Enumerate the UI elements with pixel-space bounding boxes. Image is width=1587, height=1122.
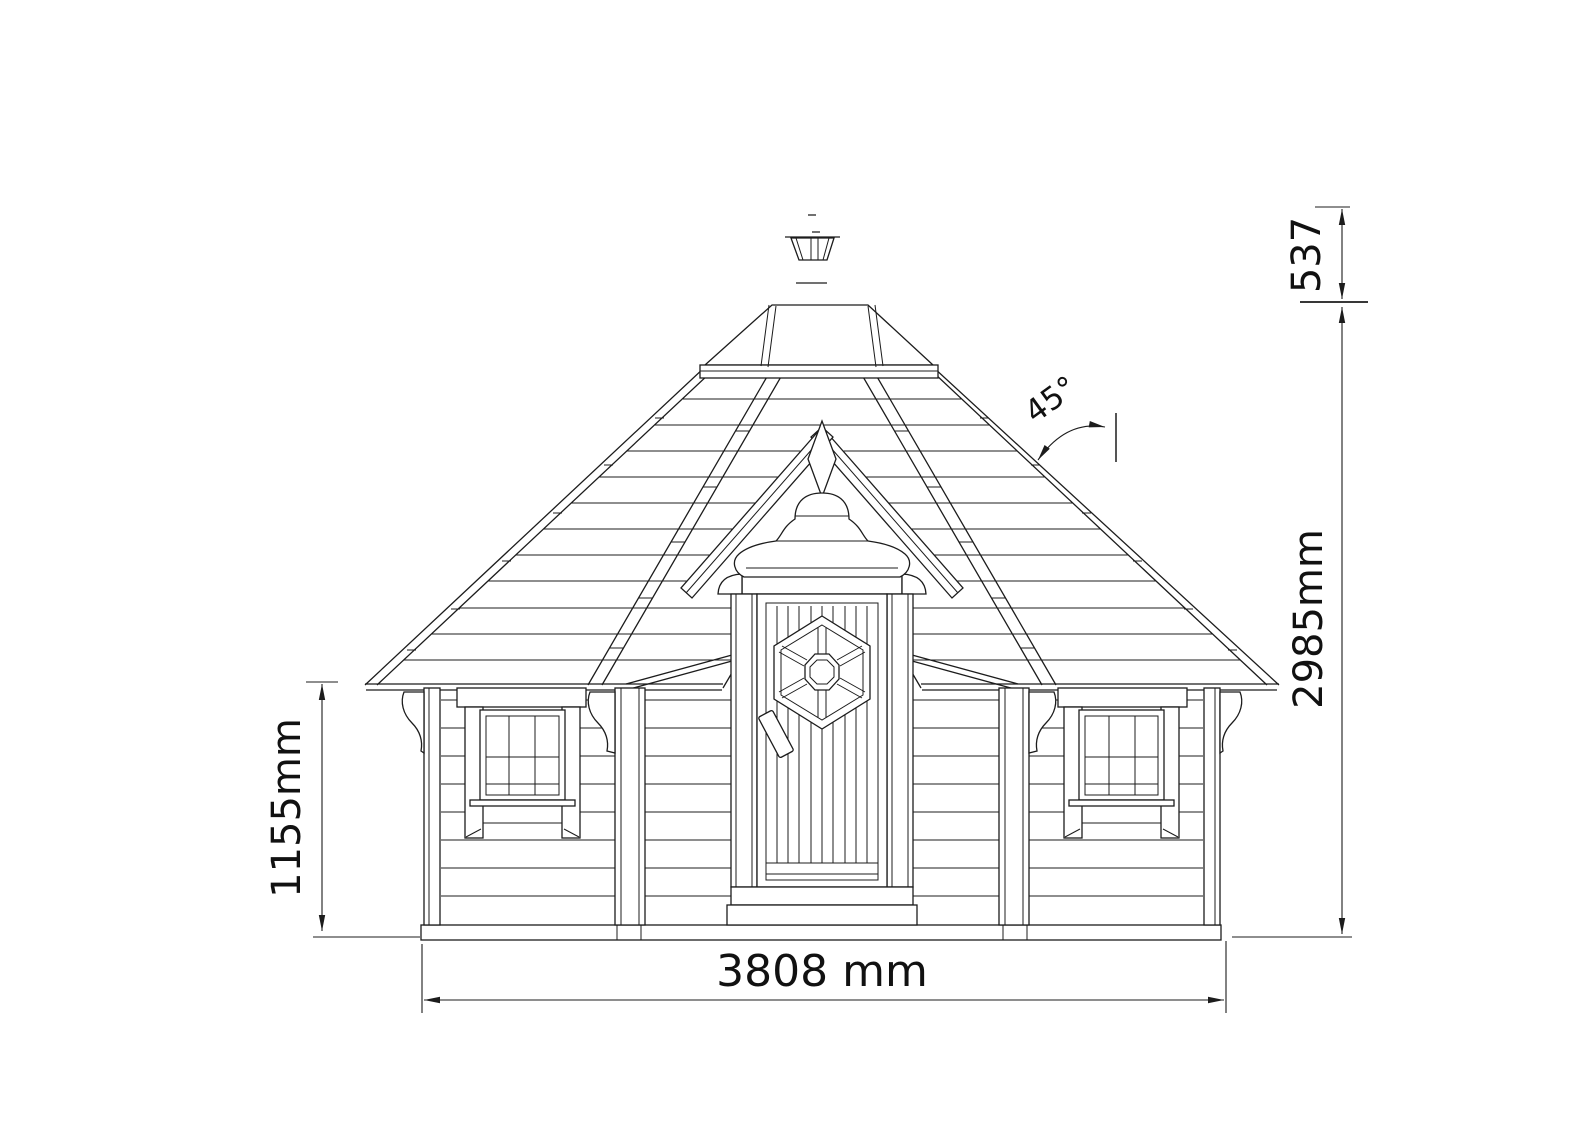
window-header bbox=[457, 688, 586, 707]
corner-post-right bbox=[1204, 688, 1220, 925]
chimney bbox=[785, 215, 840, 260]
dimension-wall-height: 1155mm bbox=[264, 682, 420, 937]
wall-height-label: 1155mm bbox=[264, 718, 310, 898]
corbel-bracket bbox=[588, 692, 615, 753]
corbel-bracket bbox=[1220, 692, 1242, 753]
window-sill bbox=[1069, 800, 1174, 806]
roof-angle-annotation: 45° bbox=[1018, 369, 1116, 462]
window-sash bbox=[480, 710, 565, 800]
door-step bbox=[731, 887, 913, 905]
total-height-label: 2985mm bbox=[1286, 529, 1332, 709]
dimension-chimney-offset: 537 bbox=[1284, 207, 1368, 302]
window-left bbox=[457, 688, 586, 838]
window-sill bbox=[470, 800, 575, 806]
door-step bbox=[727, 905, 917, 925]
corbel-bracket bbox=[402, 692, 424, 753]
window-right bbox=[1058, 688, 1187, 838]
roof-cupola bbox=[700, 283, 938, 378]
corbel-bracket bbox=[1029, 692, 1056, 753]
chimney-offset-label: 537 bbox=[1284, 217, 1330, 293]
door-pilaster bbox=[731, 594, 757, 887]
window-sash bbox=[1079, 710, 1164, 800]
chimney-vent-dashes bbox=[808, 215, 820, 232]
elevation-drawing: 1155mm 537 2985mm 3808 mm 45° bbox=[0, 0, 1587, 1122]
corner-post-left bbox=[424, 688, 440, 925]
foundation-skirt bbox=[421, 925, 1221, 940]
door-assembly bbox=[718, 493, 926, 925]
dimension-base-width: 3808 mm bbox=[422, 941, 1226, 1013]
roof-angle-label: 45° bbox=[1018, 369, 1084, 430]
window-header bbox=[1058, 688, 1187, 707]
door-pilaster bbox=[887, 594, 913, 887]
dimension-total-height: 2985mm bbox=[1232, 307, 1352, 937]
post-left-inner bbox=[615, 688, 645, 925]
post-right-inner bbox=[999, 688, 1029, 925]
base-width-label: 3808 mm bbox=[716, 946, 928, 997]
